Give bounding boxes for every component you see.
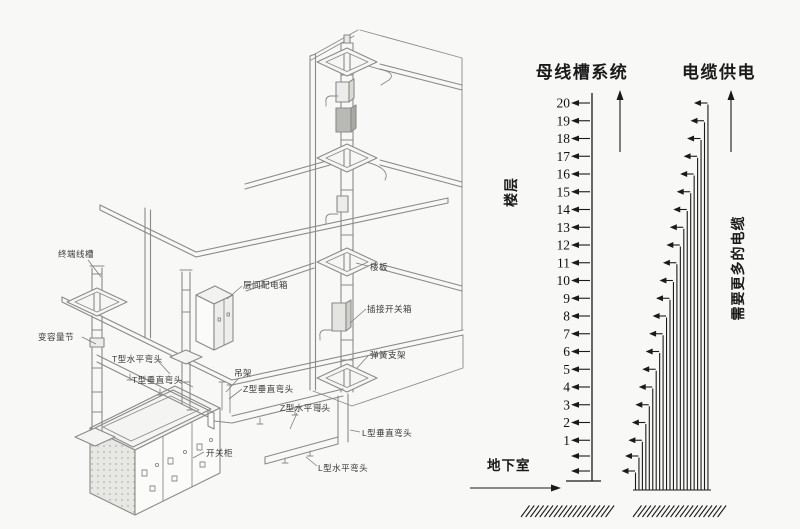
more-cables-note: 需要更多的电缆 xyxy=(730,216,746,321)
cable-tap-head xyxy=(677,189,684,195)
busway-tap-arrow-head xyxy=(571,100,579,106)
cable-tap-head xyxy=(639,384,646,390)
cable-tap-head xyxy=(635,402,642,408)
label-z-vertical-elbow: Z型垂直弯头 xyxy=(243,383,294,394)
busway-tap-arrow-head xyxy=(571,118,579,124)
plug-in-switch-box xyxy=(332,303,346,331)
tall-busway-riser xyxy=(317,35,377,392)
hatch-stroke xyxy=(666,506,675,518)
cable-tap-head xyxy=(666,242,673,248)
cable-tap-head xyxy=(684,153,691,159)
hatch-stroke xyxy=(642,506,651,518)
hatch-stroke xyxy=(652,506,661,518)
switch-cabinet-row xyxy=(90,386,220,515)
isometric-installation-drawing: 终端线槽 变容量节 T型水平弯头 T型垂直弯头 吊架 Z型垂直弯头 Z型水平弯头… xyxy=(38,30,463,515)
busway-tap-arrow-head xyxy=(571,402,579,408)
floor-number: 4 xyxy=(563,380,570,395)
label-l-vertical-elbow: L型垂直弯头 xyxy=(362,427,412,438)
floor-number: 10 xyxy=(557,273,571,288)
floor-number: 19 xyxy=(557,113,571,128)
hatch-stroke xyxy=(526,506,535,518)
hatch-stroke xyxy=(661,506,670,518)
hatch-stroke xyxy=(573,506,582,518)
hatch-stroke xyxy=(689,506,698,518)
hatch-stroke xyxy=(540,506,549,518)
hatch-stroke xyxy=(559,506,568,518)
cable-tap-head xyxy=(622,468,629,474)
floor-number: 5 xyxy=(563,362,570,377)
busway-tap-arrow-head xyxy=(571,136,579,142)
hatch-stroke xyxy=(633,506,642,518)
hatch-stroke xyxy=(708,506,717,518)
busway-tap-arrow-head xyxy=(571,295,579,301)
hatch-stroke xyxy=(657,506,666,518)
hook-icon xyxy=(320,330,331,340)
busway-system-title: 母线槽系统 xyxy=(536,62,629,82)
label-t-vertical-elbow: T型垂直弯头 xyxy=(132,374,183,385)
floor-number: 16 xyxy=(557,167,571,182)
hatch-stroke xyxy=(680,506,689,518)
hatch-stroke xyxy=(647,506,656,518)
busway-tap-arrow-head xyxy=(571,420,579,426)
floor-number: 14 xyxy=(557,202,571,217)
hatch-stroke xyxy=(685,506,694,518)
busway-tap-arrow-head xyxy=(571,153,579,159)
hatch-stroke xyxy=(554,506,563,518)
busway-riser-line xyxy=(470,93,601,492)
floor-number: 3 xyxy=(563,397,570,412)
basement-tap-arrow-head xyxy=(571,468,579,474)
cable-tap-head xyxy=(632,420,639,426)
hatch-stroke xyxy=(704,506,713,518)
busway-tap-arrow-head xyxy=(571,278,579,284)
cable-tap-head xyxy=(680,171,687,177)
label-interfloor-distribution-box: 层间配电箱 xyxy=(243,279,288,290)
plug-in-boxes xyxy=(332,79,356,331)
floor-number: 13 xyxy=(557,220,571,235)
cable-tap-head xyxy=(642,366,649,372)
comparison-chart: 母线槽系统 电缆供电 楼层 需要更多的电缆 地下室 20191817161514… xyxy=(470,62,756,517)
busway-tap-arrow-head xyxy=(571,384,579,390)
hatch-stroke xyxy=(606,506,615,518)
busway-tap-arrow-head xyxy=(571,171,579,177)
floor-number: 15 xyxy=(557,184,571,199)
hatch-stroke xyxy=(592,506,601,518)
floor-number: 8 xyxy=(563,309,570,324)
floor-number: 17 xyxy=(557,149,571,164)
hatch-stroke xyxy=(671,506,680,518)
hatch-stroke xyxy=(568,506,577,518)
busway-tap-arrow-head xyxy=(571,437,579,443)
floor-number: 11 xyxy=(557,255,570,270)
cable-tap-head xyxy=(691,118,698,124)
floor-number: 20 xyxy=(557,96,571,111)
busway-tap-arrow-head xyxy=(571,207,579,213)
label-switch-cabinet: 开关柜 xyxy=(206,447,233,458)
capacity-change-collar xyxy=(90,338,104,347)
busway-tap-arrow-head xyxy=(571,189,579,195)
busway-tap-arrow-head xyxy=(571,224,579,230)
hatch-stroke xyxy=(596,506,605,518)
cable-tap-head xyxy=(663,260,670,266)
hatch-stroke xyxy=(587,506,596,518)
floor-axis-label: 楼层 xyxy=(503,177,519,207)
floor-number: 9 xyxy=(563,291,570,306)
cable-tap-head xyxy=(656,295,663,301)
cable-tap-head xyxy=(625,453,632,459)
cable-tap-head xyxy=(670,224,677,230)
cable-tap-head xyxy=(646,349,653,355)
hatch-stroke xyxy=(549,506,558,518)
hatch-stroke xyxy=(638,506,647,518)
cable-supply-title: 电缆供电 xyxy=(682,62,756,82)
label-z-horizontal-elbow: Z型水平弯头 xyxy=(280,402,331,413)
floor-scale: 2019181716151413121110987654321 xyxy=(557,96,591,475)
cable-tap-head xyxy=(649,331,656,337)
cable-tap-head xyxy=(687,136,694,142)
busway-tap-arrow-head xyxy=(571,260,579,266)
label-l-horizontal-elbow: L型水平弯头 xyxy=(318,462,368,473)
basement-tap-arrow-head xyxy=(571,453,579,459)
hatch-stroke xyxy=(713,506,722,518)
busway-tap-arrow-head xyxy=(571,349,579,355)
cable-tap-head xyxy=(653,313,660,319)
feed-arrow xyxy=(551,485,561,492)
cable-bundle xyxy=(622,100,708,490)
floor-number: 6 xyxy=(563,344,570,359)
hatch-stroke xyxy=(582,506,591,518)
hatch-stroke xyxy=(699,506,708,518)
busway-tap-arrow-head xyxy=(571,366,579,372)
hatch-stroke xyxy=(675,506,684,518)
busway-tap-arrow-head xyxy=(571,242,579,248)
floor-number: 18 xyxy=(557,131,571,146)
busway-tap-arrow-head xyxy=(571,313,579,319)
label-floor-slab: 楼板 xyxy=(370,261,388,272)
label-hanger: 吊架 xyxy=(234,368,252,378)
floor-number: 1 xyxy=(563,433,570,448)
ground-hatching xyxy=(521,506,726,518)
label-terminal-trunking: 终端线槽 xyxy=(58,248,94,259)
busway-vs-cable-diagram: 终端线槽 变容量节 T型水平弯头 T型垂直弯头 吊架 Z型垂直弯头 Z型水平弯头… xyxy=(0,0,800,529)
up-arrows xyxy=(617,90,735,152)
label-spring-bracket: 弹簧支架 xyxy=(370,349,406,360)
busway-tap-arrow-head xyxy=(571,331,579,337)
label-plug-in-switch-box: 插接开关箱 xyxy=(367,303,412,314)
hatch-stroke xyxy=(535,506,544,518)
cable-tap-head xyxy=(673,207,680,213)
interfloor-distribution-box xyxy=(196,286,233,350)
cable-tap-head xyxy=(628,437,635,443)
hatch-stroke xyxy=(545,506,554,518)
hatch-stroke xyxy=(577,506,586,518)
basement-label: 地下室 xyxy=(487,457,531,473)
floor-number: 7 xyxy=(563,326,570,341)
hatch-stroke xyxy=(530,506,539,518)
cable-tap-head xyxy=(694,100,701,106)
label-t-horizontal-elbow: T型水平弯头 xyxy=(112,353,163,364)
hatch-stroke xyxy=(521,506,530,518)
hatch-stroke xyxy=(718,506,727,518)
label-capacity-change-section: 变容量节 xyxy=(38,331,74,342)
floor-number: 12 xyxy=(557,238,571,253)
hatch-stroke xyxy=(694,506,703,518)
cable-tap-head xyxy=(659,278,666,284)
floor-number: 2 xyxy=(563,415,570,430)
hatch-stroke xyxy=(563,506,572,518)
hatch-stroke xyxy=(601,506,610,518)
